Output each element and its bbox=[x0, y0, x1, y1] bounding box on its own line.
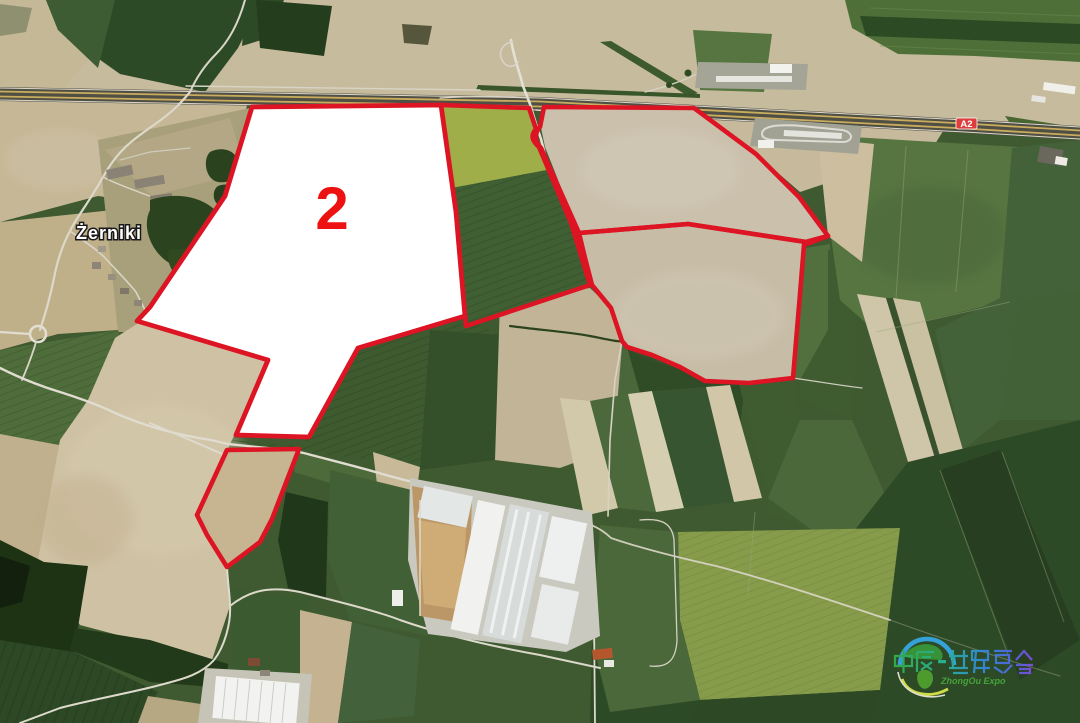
svg-text:Żerniki: Żerniki bbox=[76, 223, 142, 243]
svg-text:2: 2 bbox=[315, 175, 348, 242]
svg-text:A2: A2 bbox=[960, 119, 972, 130]
svg-text:ZhongOu Expo: ZhongOu Expo bbox=[940, 676, 1006, 686]
